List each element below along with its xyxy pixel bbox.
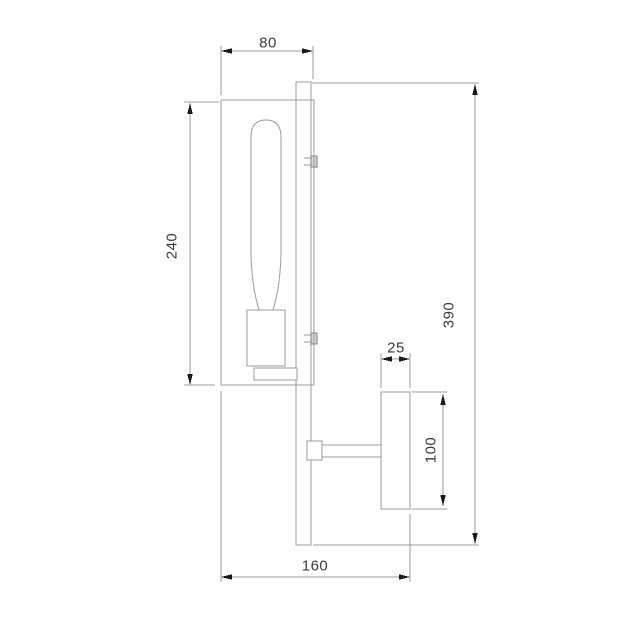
wall-sconce-elevation-drawing [0, 0, 630, 630]
dim-25-arrow-left [381, 356, 392, 361]
dim-100-arrow-bottom [440, 495, 445, 506]
mounting-strip [296, 82, 311, 545]
dim-160-arrow-right [399, 574, 410, 579]
dim-390-arrow-bottom [472, 533, 477, 544]
dim-160-arrow-left [221, 574, 232, 579]
arm-collar-block [307, 441, 322, 460]
dim-label-total-depth: 160 [301, 559, 330, 574]
wall-backplate [381, 392, 410, 509]
lamp-socket [247, 310, 285, 366]
dim-label-backplate-depth: 25 [386, 341, 406, 356]
dim-25-arrow-right [399, 356, 410, 361]
dim-label-backplate-height: 100 [424, 436, 439, 465]
technical-drawing-page: 80 240 390 25 100 160 [0, 0, 630, 630]
dim-100-arrow-top [440, 394, 445, 405]
socket-holder [254, 368, 297, 380]
dim-label-shade-height: 240 [165, 232, 180, 261]
dim-240-arrow-top [187, 103, 192, 114]
dim-80-arrow-right [302, 48, 313, 53]
dim-390-arrow-top [472, 84, 477, 95]
dim-label-total-height: 390 [442, 301, 457, 330]
bulb-outline [251, 120, 281, 310]
dim-label-shade-depth: 80 [258, 36, 278, 51]
dim-240-arrow-bottom [187, 374, 192, 385]
dim-80-arrow-left [221, 48, 232, 53]
mounting-arm [322, 445, 381, 457]
